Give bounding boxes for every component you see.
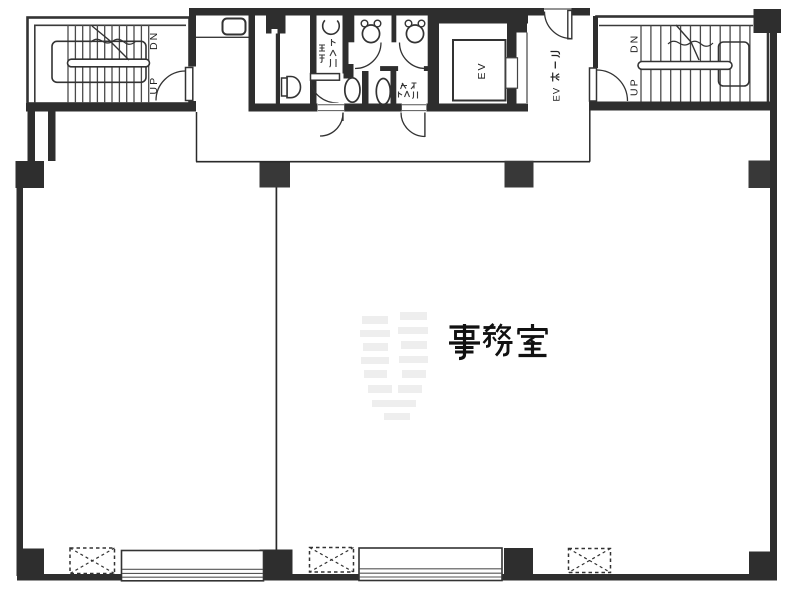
svg-text:DN: DN xyxy=(629,34,641,53)
svg-text:UP: UP xyxy=(148,76,160,95)
svg-text:EV: EV xyxy=(552,87,563,102)
svg-text:EV: EV xyxy=(476,61,488,79)
svg-text:UP: UP xyxy=(629,77,641,96)
svg-text:DN: DN xyxy=(148,31,160,50)
